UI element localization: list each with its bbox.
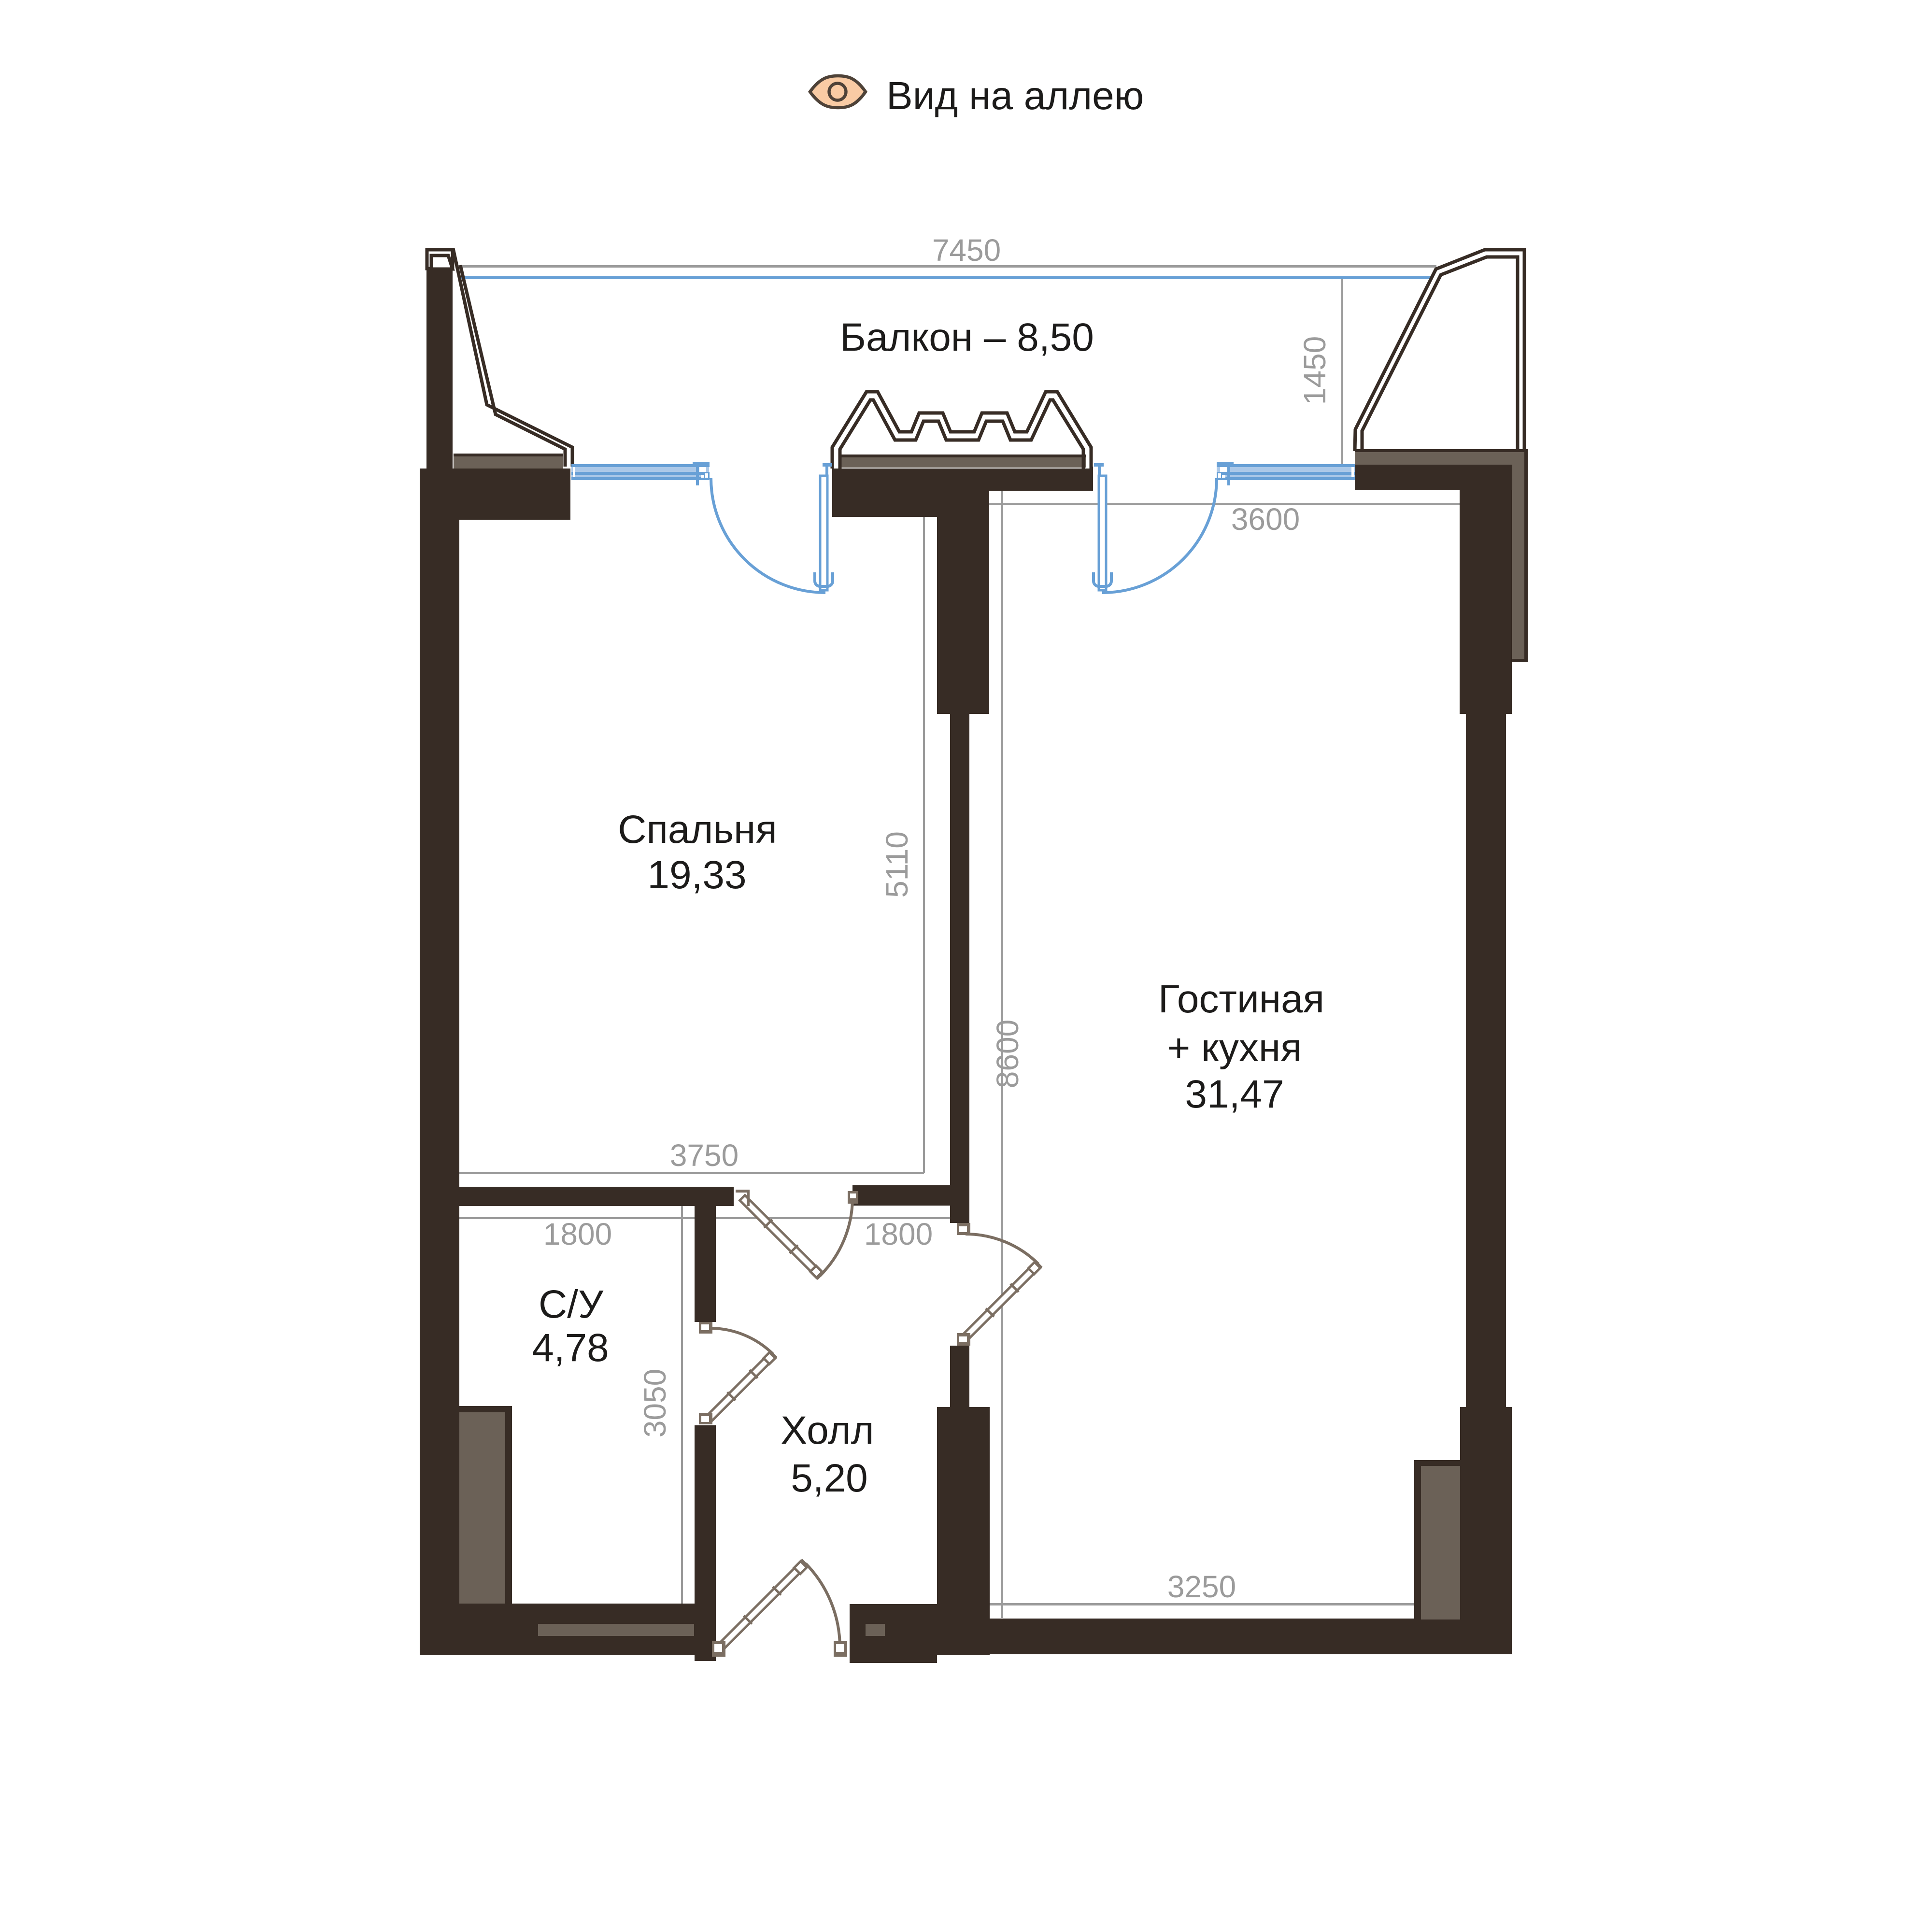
svg-text:5,20: 5,20 bbox=[791, 1456, 868, 1500]
svg-text:31,47: 31,47 bbox=[1185, 1072, 1284, 1116]
svg-text:7450: 7450 bbox=[932, 233, 1001, 268]
svg-text:С/У: С/У bbox=[539, 1282, 604, 1326]
svg-text:3050: 3050 bbox=[638, 1369, 672, 1437]
svg-text:3600: 3600 bbox=[1231, 502, 1300, 537]
svg-text:Холл: Холл bbox=[781, 1408, 874, 1452]
svg-text:4,78: 4,78 bbox=[532, 1326, 609, 1370]
svg-text:1800: 1800 bbox=[543, 1217, 612, 1251]
svg-text:1450: 1450 bbox=[1297, 336, 1332, 405]
svg-text:3750: 3750 bbox=[670, 1138, 739, 1173]
svg-text:8600: 8600 bbox=[990, 1020, 1025, 1088]
svg-text:1800: 1800 bbox=[864, 1217, 933, 1251]
svg-text:Гостиная: Гостиная bbox=[1158, 977, 1324, 1021]
svg-text:Балкон – 8,50: Балкон – 8,50 bbox=[840, 315, 1094, 359]
svg-text:Спальня: Спальня bbox=[618, 808, 777, 852]
svg-text:5110: 5110 bbox=[880, 831, 914, 898]
svg-text:+ кухня: + кухня bbox=[1167, 1026, 1302, 1070]
svg-text:Вид на аллею: Вид на аллею bbox=[886, 74, 1144, 118]
svg-text:19,33: 19,33 bbox=[647, 853, 746, 897]
svg-text:3250: 3250 bbox=[1167, 1569, 1236, 1604]
